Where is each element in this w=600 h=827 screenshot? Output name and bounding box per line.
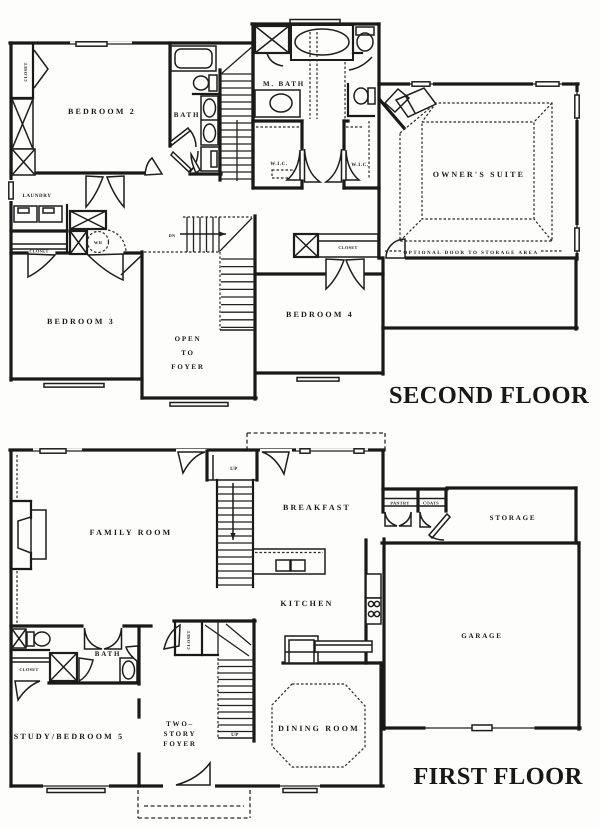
svg-text:BEDROOM 2: BEDROOM 2 — [68, 107, 136, 116]
svg-text:W.I.C.: W.I.C. — [270, 161, 288, 167]
svg-text:M. BATH: M. BATH — [263, 80, 305, 88]
svg-text:BATH: BATH — [174, 111, 201, 119]
svg-text:STUDY/BEDROOM 5: STUDY/BEDROOM 5 — [14, 732, 125, 741]
svg-text:BEDROOM 3: BEDROOM 3 — [47, 317, 115, 326]
svg-text:STORAGE: STORAGE — [490, 514, 537, 522]
svg-text:OPTIONAL DOOR TO STORAGE AREA: OPTIONAL DOOR TO STORAGE AREA — [403, 250, 538, 256]
svg-text:KITCHEN: KITCHEN — [280, 599, 333, 608]
svg-text:TWO–: TWO– — [166, 720, 194, 728]
svg-text:CLOSET: CLOSET — [338, 245, 357, 250]
svg-text:DINING ROOM: DINING ROOM — [278, 724, 360, 733]
svg-text:CLOSET: CLOSET — [29, 249, 48, 254]
svg-text:OPEN: OPEN — [175, 335, 202, 343]
svg-text:SECOND FLOOR: SECOND FLOOR — [389, 382, 589, 409]
svg-text:BEDROOM 4: BEDROOM 4 — [286, 310, 354, 319]
svg-text:PANTRY: PANTRY — [390, 501, 410, 506]
svg-text:CLOSET: CLOSET — [186, 630, 191, 649]
svg-text:BREAKFAST: BREAKFAST — [283, 503, 351, 512]
svg-text:FIRST FLOOR: FIRST FLOOR — [413, 763, 582, 790]
svg-text:CLOSET: CLOSET — [23, 62, 28, 81]
svg-text:GARAGE: GARAGE — [461, 632, 503, 640]
svg-text:W.I.C.: W.I.C. — [351, 162, 369, 168]
svg-text:FOYER: FOYER — [163, 740, 197, 748]
svg-text:DN: DN — [169, 233, 176, 238]
svg-text:OWNER'S SUITE: OWNER'S SUITE — [433, 170, 525, 179]
svg-text:UP: UP — [230, 466, 238, 472]
svg-text:FAMILY ROOM: FAMILY ROOM — [90, 528, 173, 537]
svg-text:FOYER: FOYER — [171, 363, 205, 371]
svg-text:BATH: BATH — [95, 650, 122, 658]
svg-text:STORY: STORY — [164, 730, 197, 738]
svg-text:UP: UP — [231, 732, 239, 738]
svg-text:COATS: COATS — [423, 501, 439, 506]
svg-text:CLOSET: CLOSET — [19, 667, 38, 672]
svg-text:LAUNDRY: LAUNDRY — [22, 193, 51, 199]
svg-text:WH: WH — [94, 240, 103, 245]
svg-text:TO: TO — [181, 349, 195, 357]
